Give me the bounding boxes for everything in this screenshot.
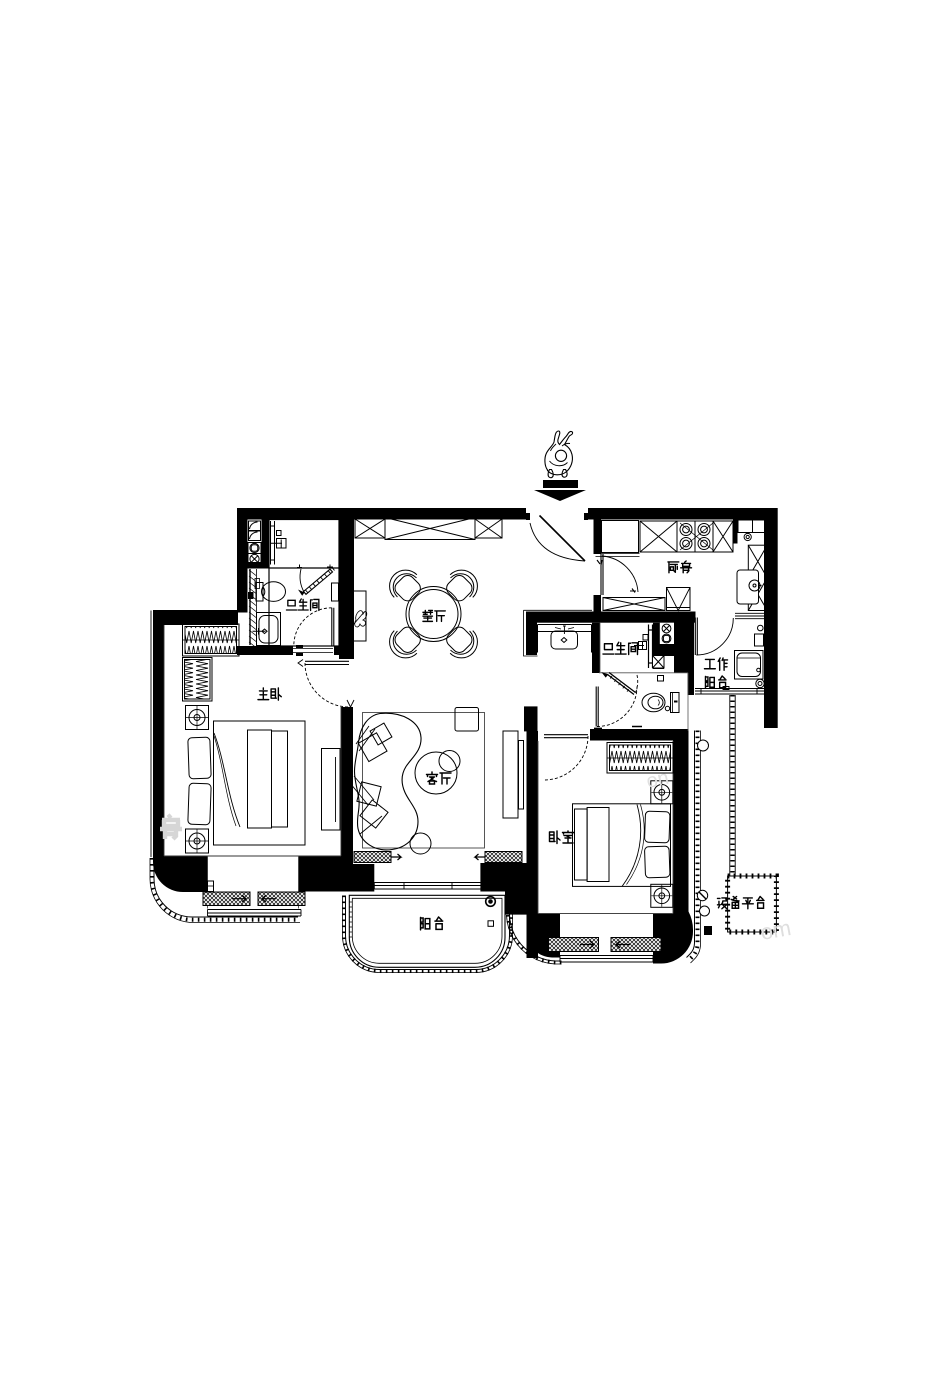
svg-text:om: om xyxy=(759,915,793,945)
svg-text:on: on xyxy=(644,767,670,793)
